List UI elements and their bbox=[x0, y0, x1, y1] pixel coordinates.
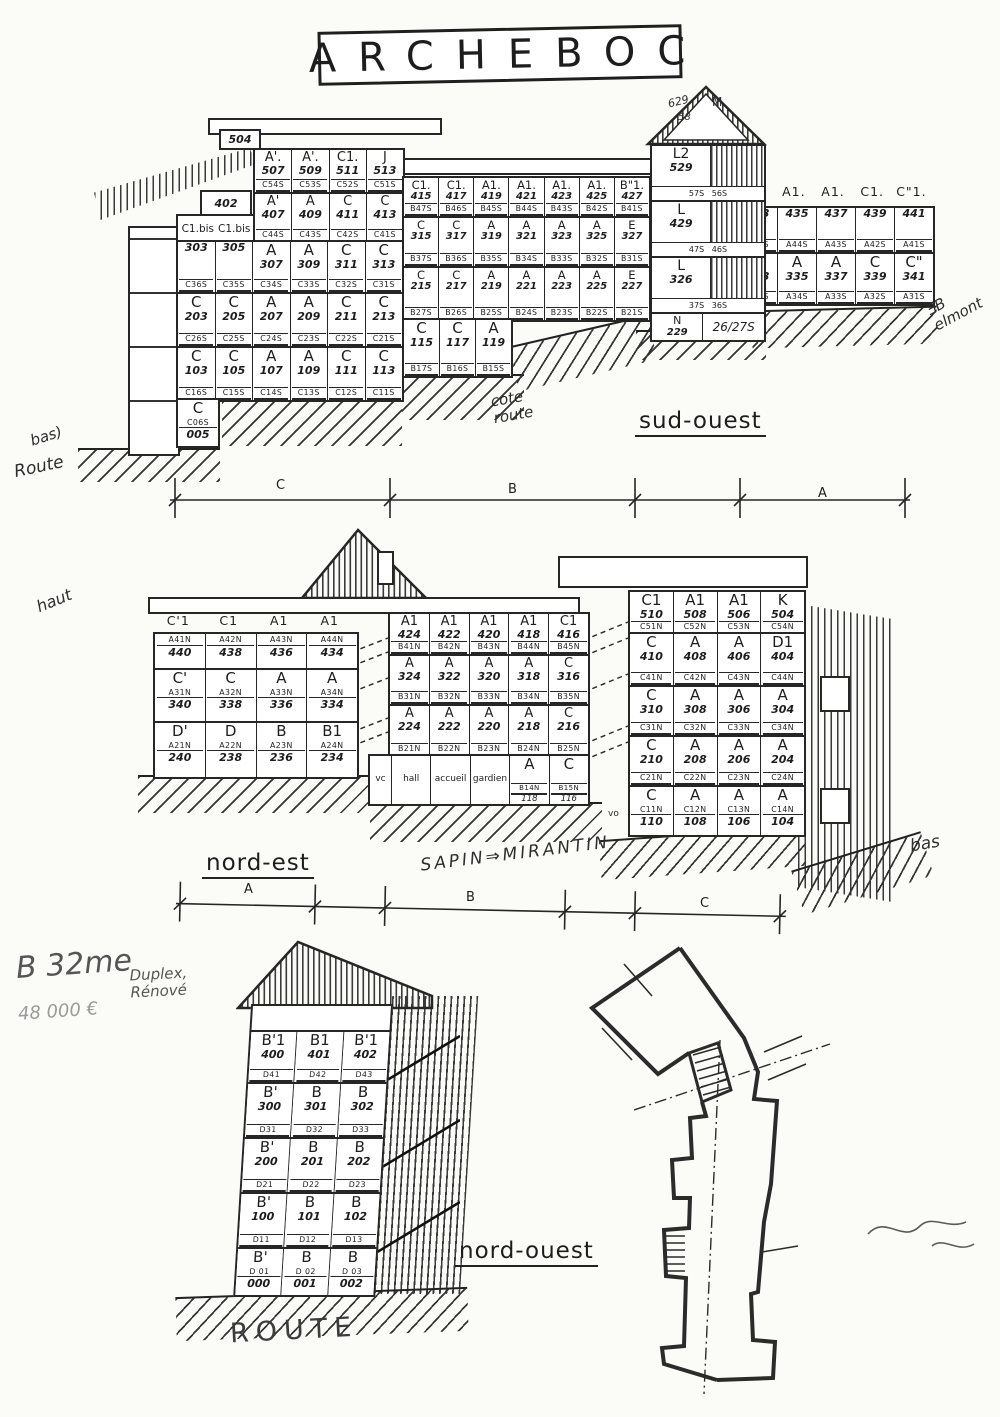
unit-cell-text: B34S bbox=[510, 253, 542, 266]
unit-cell: A223B23S bbox=[545, 268, 580, 320]
unit-cell: B1A24N234 bbox=[307, 723, 357, 777]
dim-segment-b2: B bbox=[466, 890, 475, 905]
unit-cell-text: 116 bbox=[561, 795, 577, 804]
unit-cell-text: A bbox=[487, 219, 495, 231]
unit-cell-text: 102 bbox=[344, 1211, 368, 1224]
unit-cell-text: 338 bbox=[219, 699, 242, 712]
unit-cell-text: C bbox=[646, 635, 656, 651]
unit-cell-text: A bbox=[304, 295, 314, 311]
unit-cell-text: 216 bbox=[557, 721, 580, 734]
unit-cell-text: B43S bbox=[546, 203, 578, 216]
elevation-label-sud-ouest: sud-ouest bbox=[635, 408, 766, 437]
floor-row: A'407C44SA409C43SC411C42SC413C41S bbox=[255, 194, 403, 242]
wall-window bbox=[820, 676, 850, 712]
unit-cell-text: A44S bbox=[779, 239, 815, 252]
unit-cell-text: A1 bbox=[729, 593, 749, 609]
unit-cell-text: 005 bbox=[187, 429, 210, 442]
unit-cell: B102D13 bbox=[331, 1194, 380, 1247]
unit-cell: CB15N116 bbox=[550, 756, 588, 804]
ground-hatch bbox=[138, 775, 373, 813]
c1bis-label: C1.bis bbox=[218, 223, 250, 235]
unit-cell-text: A42S bbox=[857, 239, 893, 252]
unit-cell-text: A32N bbox=[207, 688, 254, 699]
unit-cell: A221B24S bbox=[509, 268, 544, 320]
unit-cell-text: 221 bbox=[516, 281, 537, 293]
unit-cell-text: 315 bbox=[411, 231, 432, 243]
unit-cell-text: D42 bbox=[296, 1069, 339, 1082]
unit-cell-text: C51S bbox=[368, 179, 402, 192]
unit-cell: A'.509C53S bbox=[292, 150, 329, 192]
unit-cell: A208C22N bbox=[674, 737, 718, 785]
unit-cell-text: B41N bbox=[391, 641, 427, 654]
unit-cell: A42N438 bbox=[206, 634, 257, 668]
unit-cell: 305C35S bbox=[216, 242, 254, 292]
unit-cell-text: C54N bbox=[763, 621, 803, 632]
unit-cell-text: D11 bbox=[240, 1234, 283, 1247]
unit-cell: A1. bbox=[813, 184, 852, 204]
unit-cell: A219B25S bbox=[474, 268, 509, 320]
unit-cell: A41N440 bbox=[155, 634, 206, 668]
unit-cell: B'1402D43 bbox=[341, 1032, 389, 1082]
unit-cell: A43N436 bbox=[257, 634, 308, 668]
unit-cell-text: 118 bbox=[521, 795, 537, 804]
unit-cell-text: 440 bbox=[168, 647, 191, 660]
unit-cell: B'1400D41 bbox=[248, 1032, 297, 1082]
unit-cell-text: B bbox=[347, 1250, 358, 1266]
unit-cell: A324B31N bbox=[390, 656, 430, 704]
unit-cell-text: B23S bbox=[546, 307, 578, 320]
unit-cell-text: 236 bbox=[270, 752, 293, 765]
unit-cell-text: B'1 bbox=[261, 1033, 286, 1049]
unit-cell: C216B25N bbox=[549, 706, 588, 756]
unit-cell-text: B bbox=[354, 1140, 365, 1156]
unit-cell-text: D31 bbox=[246, 1124, 289, 1137]
unit-cell-text: A1. bbox=[821, 185, 844, 198]
unit-cell-text: C54S bbox=[256, 179, 290, 192]
unit-cell-text: 218 bbox=[517, 721, 540, 734]
unit-grid-nw: B'1400D41B1401D42B'1402D43B'300D31B301D3… bbox=[233, 1030, 391, 1297]
unit-cell-text: B31N bbox=[391, 691, 427, 704]
unit-cell: AC14N104 bbox=[761, 787, 804, 835]
unit-cell: A322B32N bbox=[430, 656, 470, 704]
unit-cell: 441A41S bbox=[895, 208, 933, 252]
unit-cell-text: A bbox=[777, 738, 787, 754]
hand-duplex: Duplex, Rénové bbox=[129, 965, 188, 1001]
unit-cell-text: C11S bbox=[367, 387, 401, 400]
unit-cell: CA32N338 bbox=[206, 670, 257, 721]
stair-wall-left bbox=[128, 226, 180, 456]
unit-cell-text: C32N bbox=[675, 722, 715, 735]
unit-cell-text: C bbox=[564, 657, 573, 671]
unit-cell-text: A bbox=[405, 657, 414, 671]
unit-cell-text: B47S bbox=[405, 203, 437, 216]
unit-cell-text: C21N bbox=[631, 772, 671, 785]
unit-cell-text: 425 bbox=[586, 191, 607, 203]
unit-cell-text: B' bbox=[256, 1195, 271, 1211]
unit-cell: DA22N238 bbox=[206, 723, 257, 777]
hand-price: 48 000 € bbox=[17, 999, 98, 1024]
unit-cell-text: 240 bbox=[168, 752, 191, 765]
ground-hatch bbox=[752, 306, 938, 349]
unit-cell: E327B31S bbox=[615, 218, 649, 266]
unit-cell-text: J bbox=[383, 151, 387, 165]
unit-cell-text: 320 bbox=[478, 671, 501, 684]
tower-floor: L 326 bbox=[652, 258, 764, 298]
unit-cell-text: A1 bbox=[685, 593, 705, 609]
unit-cell-text: C41N bbox=[631, 672, 671, 685]
unit-cell-text: C13S bbox=[292, 387, 326, 400]
unit-cell-text: 222 bbox=[438, 721, 461, 734]
tower-window-stripes bbox=[711, 146, 764, 186]
unit-cell-text: D22 bbox=[289, 1179, 332, 1192]
unit-cell-text: C23N bbox=[719, 772, 759, 785]
unit-cell-text: 225 bbox=[586, 281, 607, 293]
unit-cell: BD 03002 bbox=[328, 1249, 376, 1295]
hand-haut: haut bbox=[34, 586, 74, 616]
unit-cell: C'1 bbox=[153, 613, 204, 631]
unit-cell-text: 203 bbox=[185, 311, 208, 324]
unit-cell: A1422B42N bbox=[430, 614, 470, 654]
unit-cell-text: 321 bbox=[516, 231, 537, 243]
unit-cell-text: A bbox=[524, 657, 533, 671]
unit-cell-text: 409 bbox=[299, 209, 322, 222]
unit-cell: A409C43S bbox=[292, 194, 329, 242]
unit-cell: B"1.427B41S bbox=[615, 178, 649, 216]
unit-cell: C115B17S bbox=[404, 320, 440, 376]
unit-cell: C313C31S bbox=[366, 242, 403, 292]
unit-cell: A1.421B44S bbox=[509, 178, 544, 216]
unit-cell-text: B15S bbox=[477, 363, 510, 376]
hand-route-left: Route bbox=[13, 453, 66, 482]
unit-cell-text: C43N bbox=[719, 672, 759, 685]
tower-unit-type: L bbox=[677, 203, 685, 218]
unit-cell-text: B31S bbox=[616, 253, 648, 266]
unit-cell-text: 441 bbox=[903, 208, 926, 221]
dim-segment-c: C bbox=[276, 478, 285, 493]
unit-cell-text: A43S bbox=[818, 239, 854, 252]
unit-cell-text: C22S bbox=[329, 333, 363, 346]
unit-cell-text: 106 bbox=[727, 816, 750, 829]
unit-cell-text: 101 bbox=[297, 1211, 321, 1224]
unit-cell-text: 104 bbox=[771, 816, 794, 829]
unit-cell-text: 107 bbox=[260, 365, 283, 378]
unit-cell-text: A bbox=[792, 255, 802, 271]
unit-cell: E227B21S bbox=[615, 268, 649, 320]
unit-cell-text: C bbox=[229, 349, 239, 365]
unit-402-box: 402 bbox=[200, 190, 252, 216]
unit-cell-text: 510 bbox=[640, 609, 663, 622]
unit-cell-text: B45S bbox=[475, 203, 507, 216]
floor-row: D'A21N240DA22N238BA23N236B1A24N234 bbox=[155, 723, 357, 777]
floor-row: 303C36S305C35SA307C34SA309C33SC311C32SC3… bbox=[178, 242, 402, 294]
unit-cell-text: B bbox=[276, 724, 286, 740]
unit-cell-text: A bbox=[524, 707, 533, 721]
unit-cell-text: A41N bbox=[157, 635, 204, 646]
unit-cell: J513C51S bbox=[367, 150, 403, 192]
floor-row: B'200D21B201D22B202D23 bbox=[241, 1139, 382, 1194]
unit-cell-text: 334 bbox=[321, 699, 344, 712]
gable-roof-ne bbox=[300, 524, 428, 602]
unit-cell: C215B27S bbox=[404, 268, 439, 320]
unit-cell-text: A bbox=[488, 321, 498, 337]
unit-cell-text: C14N bbox=[763, 805, 803, 816]
unit-cell-text: C12S bbox=[329, 387, 363, 400]
unit-cell-text: B32S bbox=[581, 253, 613, 266]
unit-cell-text: 401 bbox=[307, 1049, 331, 1062]
unit-cell-text: A bbox=[266, 295, 276, 311]
unit-cell-text: 002 bbox=[339, 1278, 363, 1291]
unit-cell-text: C bbox=[416, 321, 426, 337]
unit-cell-text: A1 bbox=[520, 615, 537, 629]
unit-cell-text: 339 bbox=[864, 271, 887, 284]
unit-cell: A318B34N bbox=[509, 656, 549, 704]
unit-cell-text: A bbox=[777, 688, 787, 704]
unit-cell-text: A bbox=[734, 738, 744, 754]
attic-unit-number: 504 bbox=[229, 133, 252, 146]
unit-cell-text: C bbox=[870, 255, 880, 271]
unit-cell-text: 313 bbox=[372, 259, 395, 272]
unit-cell-text: C42N bbox=[675, 672, 715, 685]
hand-m: M bbox=[712, 96, 722, 109]
unit-cell: K504C54N bbox=[761, 592, 804, 632]
unit-cell-text: A1 bbox=[401, 615, 418, 629]
unit-cell-text: D 02 bbox=[284, 1267, 327, 1278]
tower-base-number: 229 bbox=[667, 327, 688, 339]
tower-base-code: 26/27S bbox=[703, 314, 764, 340]
floor-row: A324B31NA322B32NA320B33NA318B34NC316B35N bbox=[390, 656, 588, 706]
unit-cell-text: 507 bbox=[262, 165, 285, 178]
unit-cell-text: 213 bbox=[372, 311, 395, 324]
unit-grid-ne-left: A41N440A42N438A43N436A44N434C'A31N340CA3… bbox=[153, 632, 359, 779]
unit-cell-text: A bbox=[734, 688, 744, 704]
floor-row: B'100D11B101D12B102D13 bbox=[238, 1194, 379, 1249]
unit-cell: BD 02001 bbox=[282, 1249, 331, 1295]
unit-cell-text: C22N bbox=[675, 772, 715, 785]
unit-cell-text: 205 bbox=[222, 311, 245, 324]
unit-cell-text: A22N bbox=[207, 741, 254, 752]
unit-cell-text: 420 bbox=[478, 629, 501, 642]
unit-cell-text: C bbox=[646, 788, 656, 804]
unit-cell: B101D12 bbox=[285, 1194, 335, 1247]
unit-cell: A1.419B45S bbox=[474, 178, 509, 216]
unit-cell-text: B'1 bbox=[354, 1033, 379, 1049]
unit-cell-text: C bbox=[341, 243, 351, 259]
unit-cell-text: C25S bbox=[217, 333, 251, 346]
unit-cell-text: B42S bbox=[581, 203, 613, 216]
unit-cell-text: A bbox=[306, 195, 315, 209]
floor-row: 433A45S435A44S437A43S439A42S441A41S bbox=[739, 208, 933, 254]
unit-cell: 437A43S bbox=[817, 208, 856, 252]
unit-cell-text: 217 bbox=[446, 281, 467, 293]
unit-cell: A1.423B43S bbox=[545, 178, 580, 216]
attic-unit-box: 504 bbox=[219, 129, 261, 150]
unit-cell: C413C41S bbox=[367, 194, 403, 242]
unit-cell-text: C bbox=[379, 349, 389, 365]
elevation-label-nord-ouest: nord-ouest bbox=[455, 1238, 598, 1267]
unit-cell: A1506C53N bbox=[718, 592, 762, 632]
unit-grid-sw-left-upper: A'.507C54SA'.509C53SC1.511C52SJ513C51SA'… bbox=[253, 148, 405, 244]
unit-cell-text: 200 bbox=[254, 1156, 278, 1169]
unit-cell-text: A'. bbox=[302, 151, 319, 165]
unit-cell: gardien bbox=[471, 756, 510, 804]
unit-cell-text: 322 bbox=[438, 671, 461, 684]
unit-cell-text: A bbox=[327, 671, 337, 687]
unit-cell: A1508C52N bbox=[674, 592, 718, 632]
unit-cell: A408C42N bbox=[674, 634, 718, 685]
unit-cell-text: K bbox=[778, 593, 788, 609]
unit-cell: A1420B43N bbox=[470, 614, 510, 654]
unit-cell: A406C43N bbox=[718, 634, 762, 685]
unit-cell-text: 223 bbox=[551, 281, 572, 293]
tower-code-band: 47S 46S bbox=[652, 242, 764, 258]
unit-cell-text: C1. bbox=[412, 179, 431, 191]
hand-scribble bbox=[862, 1200, 997, 1262]
unit-cell-text: B24S bbox=[510, 307, 542, 320]
unit-cell-text: 513 bbox=[373, 165, 396, 178]
unit-cell-text: D43 bbox=[342, 1069, 385, 1082]
unit-cell-text: C" bbox=[905, 255, 922, 271]
unit-cell-text: 113 bbox=[372, 365, 395, 378]
unit-cell-text: B36S bbox=[440, 253, 472, 266]
unit-cell-text: A1. bbox=[782, 185, 805, 198]
unit-cell-text: C1. bbox=[337, 151, 358, 165]
unit-cell: accueil bbox=[431, 756, 470, 804]
hand-route: ROUTE bbox=[229, 1313, 359, 1349]
unit-cell: A337A33S bbox=[817, 254, 856, 304]
unit-cell: B'200D21 bbox=[242, 1139, 292, 1192]
unit-cell-text: C bbox=[646, 738, 656, 754]
unit-cell-text: C'1 bbox=[167, 614, 190, 627]
unit-grid-ne-left-header: C'1C1A1A1 bbox=[153, 613, 355, 631]
unit-cell: vc bbox=[370, 756, 392, 804]
unit-cell-text: B16S bbox=[441, 363, 474, 376]
unit-cell-text: C' bbox=[173, 671, 188, 687]
unit-cell-text: D12 bbox=[286, 1234, 329, 1247]
unit-cell-text: 325 bbox=[586, 231, 607, 243]
dim-segment-b: B bbox=[508, 482, 517, 497]
unit-cell-text: C bbox=[417, 269, 425, 281]
unit-cell: A335A34S bbox=[778, 254, 817, 304]
scanned-elevation-sheet: ARCHEBOC 504 402 C1.bis C1.bis A'.507C54… bbox=[0, 0, 1000, 1417]
floor-row: vchallaccueilgardienAB14N118CB15N116 bbox=[370, 756, 588, 804]
unit-cell-text: 117 bbox=[446, 337, 469, 350]
unit-cell-text: A bbox=[445, 707, 454, 721]
unit-cell: C317B36S bbox=[439, 218, 474, 266]
unit-cell-text: E bbox=[628, 219, 635, 231]
unit-cell: D1404C44N bbox=[761, 634, 804, 685]
project-title: ARCHEBOC bbox=[317, 24, 682, 86]
unit-cell-text: A bbox=[304, 243, 314, 259]
tower-unit-number: 529 bbox=[670, 162, 693, 175]
tower-unit-type: L2 bbox=[673, 147, 690, 162]
unit-cell-text: D 01 bbox=[238, 1267, 281, 1278]
unit-cell-text: C26S bbox=[179, 333, 213, 346]
unit-cell-text: 408 bbox=[684, 651, 707, 664]
unit-cell-text: 404 bbox=[771, 651, 794, 664]
tower-window-stripes bbox=[711, 258, 764, 298]
unit-cell-text: B33S bbox=[546, 253, 578, 266]
unit-cell-text: E bbox=[628, 269, 635, 281]
unit-cell-text: B33N bbox=[471, 691, 507, 704]
unit-cell: A207C24S bbox=[253, 294, 291, 346]
unit-cell: A308C32N bbox=[674, 687, 718, 735]
unit-cell: A304C34N bbox=[761, 687, 804, 735]
unit-cell-text: 300 bbox=[258, 1101, 282, 1114]
unit-cell: A1 bbox=[305, 613, 356, 631]
unit-cell-text: A44N bbox=[309, 635, 356, 646]
unit-cell-text: 424 bbox=[398, 629, 421, 642]
floor-row: B'300D31B301D32B302D33 bbox=[245, 1084, 386, 1139]
dim-segment-a2: A bbox=[244, 882, 253, 897]
unit-cell: C210C21N bbox=[630, 737, 674, 785]
unit-cell-text: A bbox=[690, 688, 700, 704]
unit-cell-text: 416 bbox=[557, 629, 580, 642]
tower-floor: L2 529 bbox=[652, 146, 764, 186]
floor-row: C1.415B47SC1.417B46SA1.419B45SA1.421B44S… bbox=[404, 178, 649, 218]
unit-cell-text: B42N bbox=[431, 641, 467, 654]
unit-cell: A204C24N bbox=[761, 737, 804, 785]
unit-cell-text: 119 bbox=[482, 337, 505, 350]
floor-row: A224B21NA222B22NA220B23NA218B24NC216B25N bbox=[390, 706, 588, 756]
unit-cell-text: C52N bbox=[675, 621, 715, 632]
unit-cell-text: A bbox=[266, 349, 276, 365]
unit-cell: C105C15S bbox=[216, 348, 254, 400]
unit-cell-text: 224 bbox=[398, 721, 421, 734]
tower-code-band: 57S 56S bbox=[652, 186, 764, 202]
unit-cell-text: 001 bbox=[293, 1278, 317, 1291]
unit-cell-text: A1 bbox=[320, 614, 339, 627]
unit-cell-text: A1. bbox=[587, 179, 606, 191]
tower-unit-number: 429 bbox=[670, 218, 693, 231]
unit-cell: A325B32S bbox=[580, 218, 615, 266]
unit-cell-text: 110 bbox=[640, 816, 663, 829]
unit-cell-text: C24S bbox=[254, 333, 288, 346]
unit-cell-text: 421 bbox=[516, 191, 537, 203]
floor-row: C'1C1A1A1 bbox=[153, 613, 355, 631]
unit-cell-text: C12N bbox=[675, 805, 715, 816]
unit-cell-text: B22S bbox=[581, 307, 613, 320]
floor-row: A1424B41NA1422B42NA1420B43NA1418B44NC141… bbox=[390, 614, 588, 656]
unit-cell: AA34N334 bbox=[307, 670, 357, 721]
unit-cell-text: hall bbox=[403, 775, 419, 784]
unit-cell-text: A1 bbox=[270, 614, 289, 627]
unit-cell-text: A21N bbox=[157, 741, 204, 752]
unit-cell-text: B34N bbox=[511, 691, 547, 704]
unit-cell-text: C"1. bbox=[896, 185, 926, 198]
unit-cell-text: 311 bbox=[335, 259, 358, 272]
unit-cell-text: A1. bbox=[517, 179, 536, 191]
unit-cell-text: C51N bbox=[631, 621, 671, 632]
floor-row: C1510C51NA1508C52NA1506C53NK504C54N bbox=[630, 592, 804, 634]
unit-cell: C1.417B46S bbox=[439, 178, 474, 216]
unit-cell-text: 307 bbox=[260, 259, 283, 272]
unit-cell-text: 111 bbox=[335, 365, 358, 378]
unit-cell-text: B bbox=[304, 1195, 315, 1211]
unit-cell-text: 210 bbox=[640, 754, 663, 767]
unit-cell-text: vc bbox=[375, 775, 385, 784]
unit-cell-text: B"1. bbox=[620, 179, 644, 191]
unit-cell: C113C11S bbox=[366, 348, 403, 400]
unit-cell-text: C34N bbox=[763, 722, 803, 735]
unit-cell-text: C15S bbox=[217, 387, 251, 400]
floor-row: C215B27SC217B26SA219B25SA221B24SA223B23S… bbox=[404, 268, 649, 320]
unit-cell: C1 bbox=[204, 613, 255, 631]
unit-cell: hall bbox=[392, 756, 431, 804]
unit-cell: C"341A31S bbox=[895, 254, 933, 304]
unit-cell: CC06S005 bbox=[178, 400, 218, 446]
unit-cell-text: 309 bbox=[297, 259, 320, 272]
unit-cell-text: A33N bbox=[258, 688, 305, 699]
